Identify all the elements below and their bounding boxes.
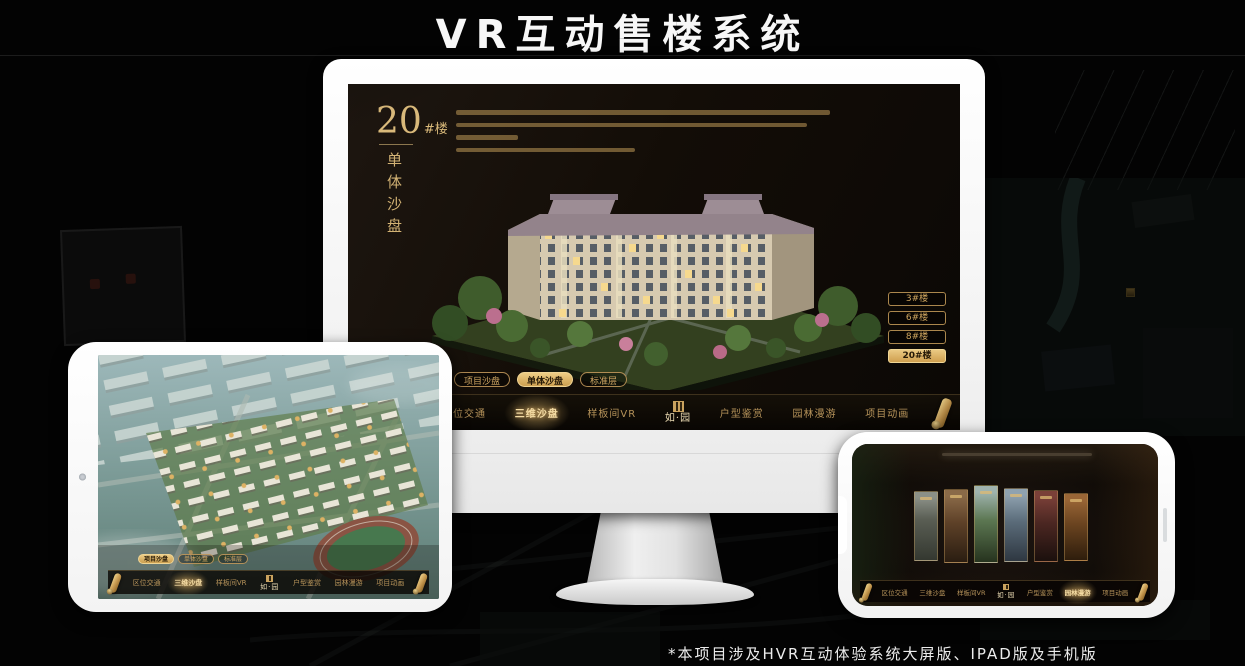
phone-screen: 区位交通 三维沙盘 样板间VR 如·园 户型鉴赏 园林漫游 项目动画 — [852, 444, 1158, 606]
footnote: *本项目涉及HVR互动体验系统大屏版、IPAD版及手机版 — [668, 643, 1098, 664]
building-render — [420, 138, 894, 390]
background-photo — [480, 612, 660, 666]
nav-item-3d-sandtable[interactable]: 三维沙盘 — [919, 587, 945, 597]
nav-item-floorplans[interactable]: 户型鉴赏 — [1027, 587, 1053, 597]
nav-item-garden-tour[interactable]: 园林漫游 — [335, 578, 363, 588]
nav-item-garden-tour[interactable]: 园林漫游 — [793, 405, 837, 420]
nav-item-garden-tour[interactable]: 园林漫游 — [1065, 587, 1091, 597]
brand-name: 如·园 — [260, 584, 279, 591]
bottom-navbar: 区位交通 三维沙盘 样板间VR 如·园 户型鉴赏 园林漫游 项目动画 — [860, 580, 1150, 602]
title-rule — [379, 144, 413, 145]
nav-item-floorplans[interactable]: 户型鉴赏 — [293, 578, 321, 588]
ceiling-light — [942, 453, 1092, 456]
ipad-screen: 项目沙盘 单体沙盘 标准层 区位交通 三维沙盘 样板间VR 如·园 户型鉴赏 园… — [98, 355, 439, 599]
scroll-icon — [861, 582, 873, 601]
subtab-group: 项目沙盘 单体沙盘 标准层 — [138, 554, 248, 564]
subtab-project-sandtable[interactable]: 项目沙盘 — [138, 554, 174, 564]
gallery-panel-2[interactable] — [944, 489, 968, 563]
subtab-group: 项目沙盘 单体沙盘 标准层 — [454, 372, 627, 387]
nav-item-location[interactable]: 区位交通 — [133, 578, 161, 588]
gallery-panel-1[interactable] — [914, 491, 938, 561]
nav-item-showroom-vr[interactable]: 样板间VR — [957, 587, 985, 597]
speaker-icon — [1163, 508, 1167, 542]
nav-item-floorplans[interactable]: 户型鉴赏 — [720, 405, 764, 420]
floor-button-20[interactable]: 20#楼 — [888, 349, 946, 363]
gallery-panel-4[interactable] — [1004, 488, 1028, 562]
seal-icon — [673, 401, 684, 412]
scroll-icon — [1137, 582, 1149, 601]
block-title: 20#楼 — [376, 104, 448, 140]
block-number-suffix: #楼 — [424, 122, 448, 137]
background-brand-mark — [1126, 288, 1135, 297]
monitor-stand-base — [556, 579, 754, 605]
subtab-single-sandtable[interactable]: 单体沙盘 — [517, 372, 573, 387]
nav-item-project-film[interactable]: 项目动画 — [376, 578, 404, 588]
subtab-standard-floor[interactable]: 标准层 — [218, 554, 248, 564]
floor-button-8[interactable]: 8#楼 — [888, 330, 946, 344]
block-number: 20 — [376, 101, 422, 142]
brand-name: 如·园 — [665, 414, 691, 424]
ipad-device: 项目沙盘 单体沙盘 标准层 区位交通 三维沙盘 样板间VR 如·园 户型鉴赏 园… — [68, 342, 452, 612]
background-plaque — [60, 226, 186, 346]
scroll-icon — [415, 572, 428, 593]
floor-button-group: 3#楼 6#楼 8#楼 20#楼 — [888, 292, 946, 363]
nav-item-3d-sandtable[interactable]: 三维沙盘 — [515, 405, 559, 420]
floor-button-6[interactable]: 6#楼 — [888, 311, 946, 325]
floor-button-3[interactable]: 3#楼 — [888, 292, 946, 306]
subtab-standard-floor[interactable]: 标准层 — [580, 372, 627, 387]
background-aerial-photo — [983, 178, 1245, 436]
phone-notch — [838, 496, 847, 554]
scroll-icon — [109, 572, 122, 593]
brand-name: 如·园 — [997, 592, 1015, 599]
nav-item-location[interactable]: 区位交通 — [882, 587, 908, 597]
page-title: VR互动售楼系统 — [0, 2, 1245, 60]
subtab-single-sandtable[interactable]: 单体沙盘 — [178, 554, 214, 564]
nav-item-3d-sandtable[interactable]: 三维沙盘 — [174, 578, 202, 588]
bottom-navbar: 区位交通 三维沙盘 样板间VR 如·园 户型鉴赏 园林漫游 项目动画 — [108, 570, 429, 594]
seal-icon — [266, 575, 273, 582]
gallery-panel-5[interactable] — [1034, 490, 1058, 562]
seal-icon — [1003, 584, 1009, 590]
background-texture — [1055, 70, 1235, 190]
phone-device: 区位交通 三维沙盘 样板间VR 如·园 户型鉴赏 园林漫游 项目动画 — [838, 432, 1175, 618]
brand-logo: 如·园 — [997, 584, 1015, 599]
scroll-icon — [933, 397, 953, 429]
camera-icon — [79, 474, 86, 481]
poster: VR互动售楼系统 20#楼 单体沙盘 — [0, 0, 1245, 666]
nav-item-project-film[interactable]: 项目动画 — [865, 405, 909, 420]
nav-item-showroom-vr[interactable]: 样板间VR — [216, 578, 247, 588]
gallery-panel-3[interactable] — [974, 485, 998, 563]
brand-logo: 如·园 — [260, 575, 279, 591]
nav-item-showroom-vr[interactable]: 样板间VR — [587, 405, 636, 420]
nav-item-project-film[interactable]: 项目动画 — [1102, 587, 1128, 597]
monitor-stand — [587, 513, 723, 583]
subtab-project-sandtable[interactable]: 项目沙盘 — [454, 372, 510, 387]
brand-logo: 如·园 — [665, 401, 691, 424]
gallery-panel-6[interactable] — [1064, 493, 1088, 561]
block-subtitle: 单体沙盘 — [384, 152, 405, 240]
